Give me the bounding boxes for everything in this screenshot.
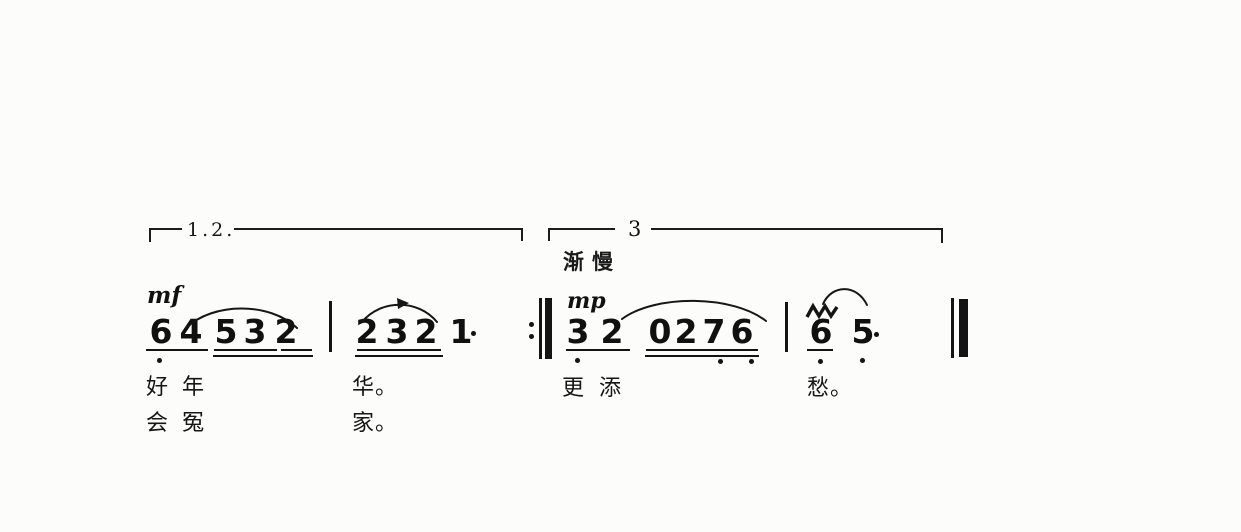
note-digit: 6 bbox=[808, 315, 834, 349]
note-digit: 3 bbox=[242, 315, 268, 349]
augmentation-dot bbox=[471, 331, 476, 336]
slur bbox=[823, 289, 867, 305]
tempo-marking: 渐慢 bbox=[563, 246, 621, 276]
lyric-char: 家。 bbox=[352, 405, 398, 437]
note-digit: 4 bbox=[178, 315, 204, 349]
lyric-char: 冤 bbox=[182, 405, 205, 437]
barline bbox=[785, 302, 788, 352]
lyric-char: 更 bbox=[562, 370, 585, 402]
repeat-barline-thin bbox=[539, 298, 542, 359]
octave-dot bbox=[749, 359, 754, 364]
volta2-line-left bbox=[548, 228, 615, 230]
volta2-right-tick bbox=[941, 228, 943, 243]
note-digit: 2 bbox=[673, 315, 699, 349]
repeat-dot bbox=[529, 322, 534, 327]
beam bbox=[214, 349, 277, 351]
beam bbox=[357, 349, 441, 351]
repeat-barline-thick bbox=[545, 298, 552, 359]
volta2-line-right bbox=[651, 228, 943, 230]
note-digit: 2 bbox=[413, 315, 439, 349]
dynamic-mp: mp bbox=[567, 288, 606, 314]
volta1-right-tick bbox=[521, 228, 523, 241]
sheet-music-page: 1.2. 3 渐慢 mf mp 6 4 5 3 2 2 3 2 1 3 2 0 … bbox=[0, 0, 1241, 532]
lyric-char: 添 bbox=[599, 370, 622, 402]
lyric-char: 会 bbox=[146, 405, 169, 437]
octave-dot bbox=[860, 358, 865, 363]
note-digit: 6 bbox=[148, 315, 174, 349]
note-digit: 2 bbox=[599, 315, 625, 349]
beam bbox=[807, 349, 833, 351]
barline bbox=[329, 301, 332, 352]
final-barline-thin bbox=[951, 298, 954, 358]
beam bbox=[146, 349, 208, 351]
lyric-char: 年 bbox=[182, 369, 205, 401]
beam bbox=[646, 349, 758, 351]
octave-dot bbox=[818, 359, 823, 364]
beam bbox=[645, 355, 759, 357]
note-digit: 7 bbox=[701, 315, 727, 349]
octave-dot bbox=[718, 359, 723, 364]
note-digit: 5 bbox=[213, 315, 239, 349]
dynamic-mf: mf bbox=[147, 282, 181, 309]
beam bbox=[213, 355, 313, 357]
augmentation-dot bbox=[874, 332, 879, 337]
beam bbox=[566, 349, 630, 351]
volta1-line-left bbox=[149, 228, 182, 230]
note-digit: 3 bbox=[565, 315, 591, 349]
lyric-char: 愁。 bbox=[807, 370, 853, 402]
volta1-line-right bbox=[234, 228, 523, 230]
repeat-dot bbox=[529, 334, 534, 339]
final-barline-thick bbox=[959, 299, 968, 357]
beam bbox=[281, 349, 312, 351]
note-digit: 5 bbox=[850, 315, 876, 349]
rest-digit: 0 bbox=[647, 315, 673, 349]
note-digit: 6 bbox=[729, 315, 755, 349]
octave-dot bbox=[157, 358, 162, 363]
volta2-label: 3 bbox=[628, 217, 644, 241]
volta1-label: 1.2. bbox=[187, 219, 235, 241]
note-digit: 2 bbox=[354, 315, 380, 349]
note-digit: 2 bbox=[273, 315, 299, 349]
lyric-char: 好 bbox=[146, 369, 169, 401]
note-digit: 3 bbox=[384, 315, 410, 349]
octave-dot bbox=[575, 358, 580, 363]
slur-arrow-icon bbox=[397, 298, 409, 309]
beam bbox=[355, 355, 443, 357]
lyric-char: 华。 bbox=[352, 369, 398, 401]
